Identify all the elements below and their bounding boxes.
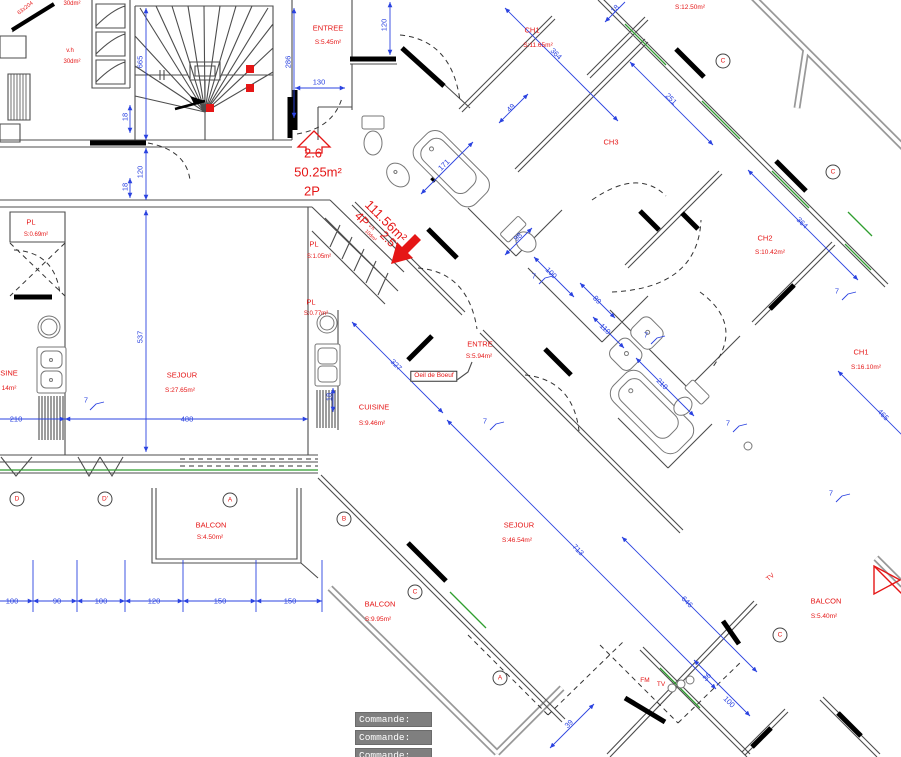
dimension-label: 210 (10, 415, 23, 423)
room-ch3: CH3 (603, 138, 618, 146)
dimension-label: 100 (6, 597, 19, 605)
outlet-tv: TV (657, 682, 665, 689)
room-area: S:9.46m² (359, 421, 385, 428)
room-ch1: CH1 (524, 26, 539, 34)
unit-number: 2.6 (304, 147, 322, 160)
dimension-label: 18 (121, 183, 129, 191)
room-ch2: CH2 (757, 234, 772, 242)
outlet-circle (686, 676, 694, 684)
room-area: S:16.10m² (851, 365, 881, 372)
sink (382, 159, 414, 192)
room-pl: PL (309, 240, 318, 248)
reference-marker: A (223, 493, 238, 508)
dimension-label: 18 (325, 393, 333, 401)
room-sejour: SEJOUR (504, 521, 534, 529)
outlet-circle (744, 442, 752, 450)
dimension-label: 150 (214, 597, 227, 605)
room-balcon: BALCON (365, 600, 396, 608)
reference-marker: C (408, 585, 423, 600)
toilet-bowl (364, 131, 382, 155)
dimension-label: 7 (84, 396, 88, 404)
radiator-hatch (11, 6, 52, 120)
room-area: S:27.65m² (165, 388, 195, 395)
reference-marker: A (493, 671, 508, 686)
dimension-label: 120 (380, 19, 388, 32)
sink2 (607, 314, 666, 373)
dimension-label: 130 (313, 78, 326, 86)
room-area: 14m² (2, 386, 17, 393)
dimension-label: 7 (829, 489, 833, 497)
dimension-label: 18 (121, 113, 129, 121)
command-line[interactable]: Commande: (355, 712, 432, 727)
room-entre: ENTRE (467, 340, 492, 348)
reference-marker: C (716, 54, 731, 69)
room-balcon: BALCON (811, 597, 842, 605)
room-entree: ENTREE (313, 24, 343, 32)
oeil-de-boeuf-label: Oeil de Boeuf (410, 371, 457, 382)
floorplan-stage: ENTREES:5.45m²CH1S:11.65m²S:12.50m²CH3CH… (0, 0, 901, 757)
reference-marker: B (337, 512, 352, 527)
reference-marker: D' (98, 492, 113, 507)
outlet-circle (668, 684, 676, 692)
dimension-label: 7 (644, 331, 648, 339)
dimension-label: 537 (136, 331, 144, 344)
room-sejour: SEJOUR (167, 371, 197, 379)
command-line[interactable]: Commande: (355, 748, 432, 757)
dimension-label: 120 (136, 166, 144, 179)
dimension-label: 286 (284, 56, 292, 69)
room-cuisine: CUISINE (359, 403, 389, 411)
bathtub (408, 126, 494, 212)
vent-label: v.h (66, 48, 74, 54)
room-ch1: CH1 (853, 348, 868, 356)
room-area: S:4.50m² (197, 535, 223, 542)
room-area: S:5.45m² (315, 40, 341, 47)
dimension-label: 90 (53, 597, 61, 605)
vent-area: 30dm² (63, 59, 80, 65)
room-area: S:11.65m² (523, 43, 553, 50)
glazing-lines (0, 24, 872, 708)
room-area: S:9.95m² (365, 617, 391, 624)
dimension-label: 150 (284, 597, 297, 605)
outlet-fm: FM (640, 678, 649, 685)
reference-marker: C (826, 165, 841, 180)
command-panel: Commande:Commande:Commande: (355, 712, 432, 757)
unit-type: 2P (304, 185, 320, 198)
room-area: S:12.50m² (675, 5, 705, 12)
room-area: S:46.54m² (502, 538, 532, 545)
dimension-label: 7 (532, 272, 536, 280)
room-area: S:0.77m² (304, 311, 328, 317)
room-balcon: BALCON (196, 521, 227, 529)
dimension-label: 120 (148, 597, 161, 605)
room-cuisine-clipped: SINE (0, 369, 18, 377)
dimension-label: 100 (95, 597, 108, 605)
room-area: S:10.42m² (755, 250, 785, 257)
dimension-label: 7 (835, 287, 839, 295)
dimension-label: 488 (181, 415, 194, 423)
dimension-label: 665 (136, 56, 144, 69)
reference-marker: D (10, 492, 25, 507)
dimension-label: 7 (726, 419, 730, 427)
left-diagonal-wall (12, 4, 54, 30)
outlet-circle (677, 680, 685, 688)
room-area: S:5.94m² (466, 354, 492, 361)
command-line[interactable]: Commande: (355, 730, 432, 745)
dimension-label: 7 (483, 417, 487, 425)
toilet-tank (362, 116, 384, 129)
room-area: S:0.69m² (24, 232, 48, 238)
reference-marker: C (773, 628, 788, 643)
room-pl: PL (26, 218, 35, 226)
room-pl: PL (306, 298, 315, 306)
vent-area: 30dm² (63, 1, 80, 7)
unit-area: 50.25m² (294, 166, 342, 179)
room-area: S:1.05m² (307, 254, 331, 260)
room-area: S:5.40m² (811, 614, 837, 621)
